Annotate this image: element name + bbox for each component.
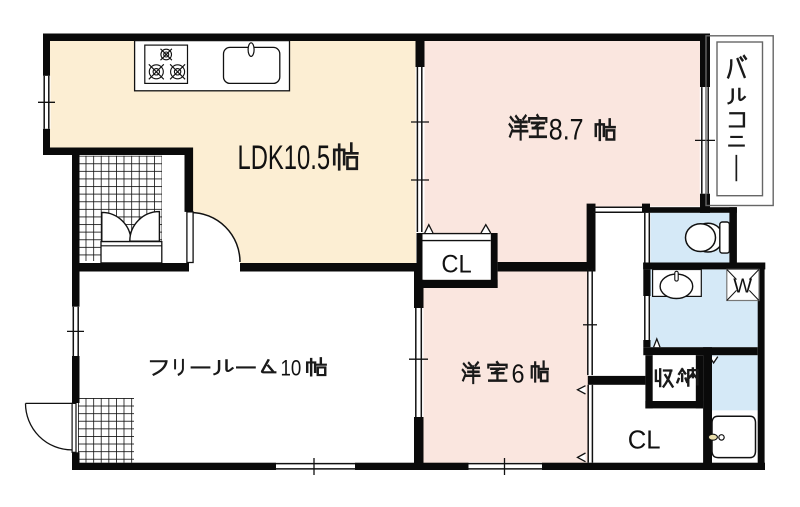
- svg-text:LDK10.5: LDK10.5: [238, 139, 331, 177]
- svg-text:6: 6: [512, 361, 525, 389]
- svg-text:8.7: 8.7: [549, 112, 584, 145]
- svg-text:10: 10: [281, 357, 302, 381]
- svg-text:W: W: [733, 276, 752, 298]
- svg-text:CL: CL: [628, 426, 661, 454]
- svg-text:CL: CL: [441, 251, 471, 279]
